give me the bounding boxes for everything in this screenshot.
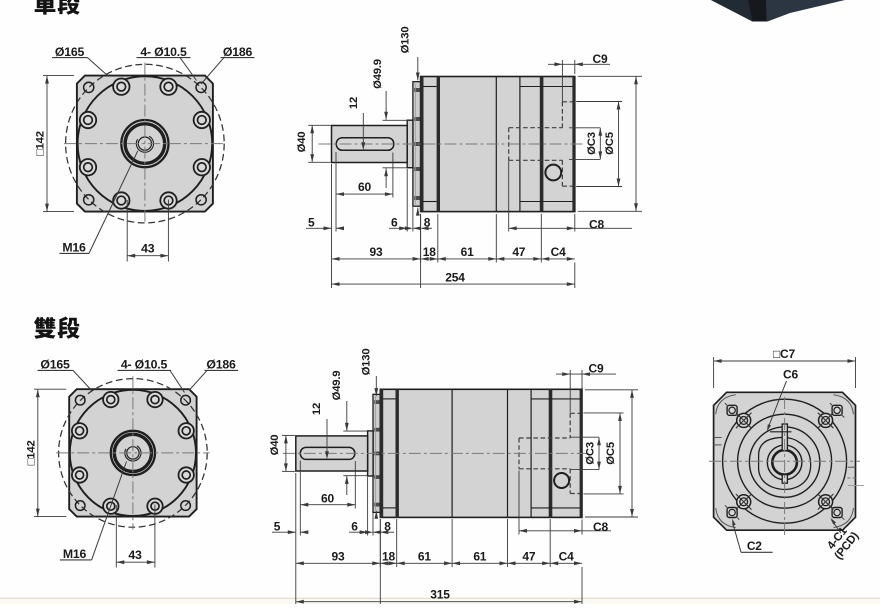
svg-text:61: 61 (473, 550, 486, 564)
svg-text:5: 5 (308, 215, 315, 229)
svg-text:ØC3: ØC3 (586, 132, 598, 155)
svg-text:8: 8 (384, 519, 391, 533)
svg-text:8: 8 (424, 215, 431, 229)
svg-text:43: 43 (128, 548, 142, 562)
svg-text:93: 93 (370, 245, 383, 259)
svg-text:C8: C8 (589, 218, 604, 232)
svg-text:60: 60 (358, 180, 371, 194)
svg-text:43: 43 (141, 241, 155, 255)
svg-text:C6: C6 (783, 368, 798, 382)
svg-text:C8: C8 (593, 520, 608, 534)
svg-text:C9: C9 (589, 362, 604, 376)
svg-text:254: 254 (445, 271, 465, 285)
svg-text:□C7: □C7 (773, 347, 796, 361)
svg-text:6: 6 (391, 215, 398, 229)
svg-text:Ø49.9: Ø49.9 (372, 59, 384, 89)
svg-text:315: 315 (430, 588, 450, 602)
svg-text:C9: C9 (593, 52, 608, 66)
svg-text:12: 12 (348, 97, 360, 109)
svg-text:Ø40: Ø40 (269, 435, 281, 456)
svg-text:18: 18 (382, 550, 395, 564)
svg-text:Ø40: Ø40 (296, 132, 308, 153)
svg-text:12: 12 (311, 403, 323, 415)
svg-text:61: 61 (418, 550, 431, 564)
svg-text:ØC5: ØC5 (604, 132, 616, 155)
svg-text:93: 93 (332, 550, 345, 564)
svg-text:18: 18 (423, 245, 436, 259)
svg-text:Ø130: Ø130 (361, 349, 373, 376)
svg-text:M16: M16 (62, 241, 86, 255)
svg-text:47: 47 (512, 245, 525, 259)
svg-text:60: 60 (321, 491, 334, 505)
svg-text:□142: □142 (35, 131, 47, 156)
svg-text:5: 5 (274, 519, 281, 533)
svg-text:C2: C2 (747, 539, 762, 553)
svg-text:ØC5: ØC5 (605, 442, 617, 465)
svg-text:Ø165: Ø165 (40, 358, 70, 372)
svg-text:61: 61 (461, 245, 474, 259)
svg-text:Ø49.9: Ø49.9 (331, 371, 343, 401)
svg-text:C4: C4 (559, 550, 574, 564)
svg-text:Ø186: Ø186 (206, 358, 236, 372)
svg-text:6: 6 (351, 519, 358, 533)
svg-text:□142: □142 (25, 440, 37, 465)
svg-text:47: 47 (522, 550, 535, 564)
svg-text:C4: C4 (551, 245, 566, 259)
svg-text:4- Ø10.5: 4- Ø10.5 (121, 358, 168, 372)
svg-text:M16: M16 (63, 547, 87, 561)
svg-text:Ø130: Ø130 (400, 27, 412, 54)
svg-text:ØC3: ØC3 (585, 442, 597, 465)
